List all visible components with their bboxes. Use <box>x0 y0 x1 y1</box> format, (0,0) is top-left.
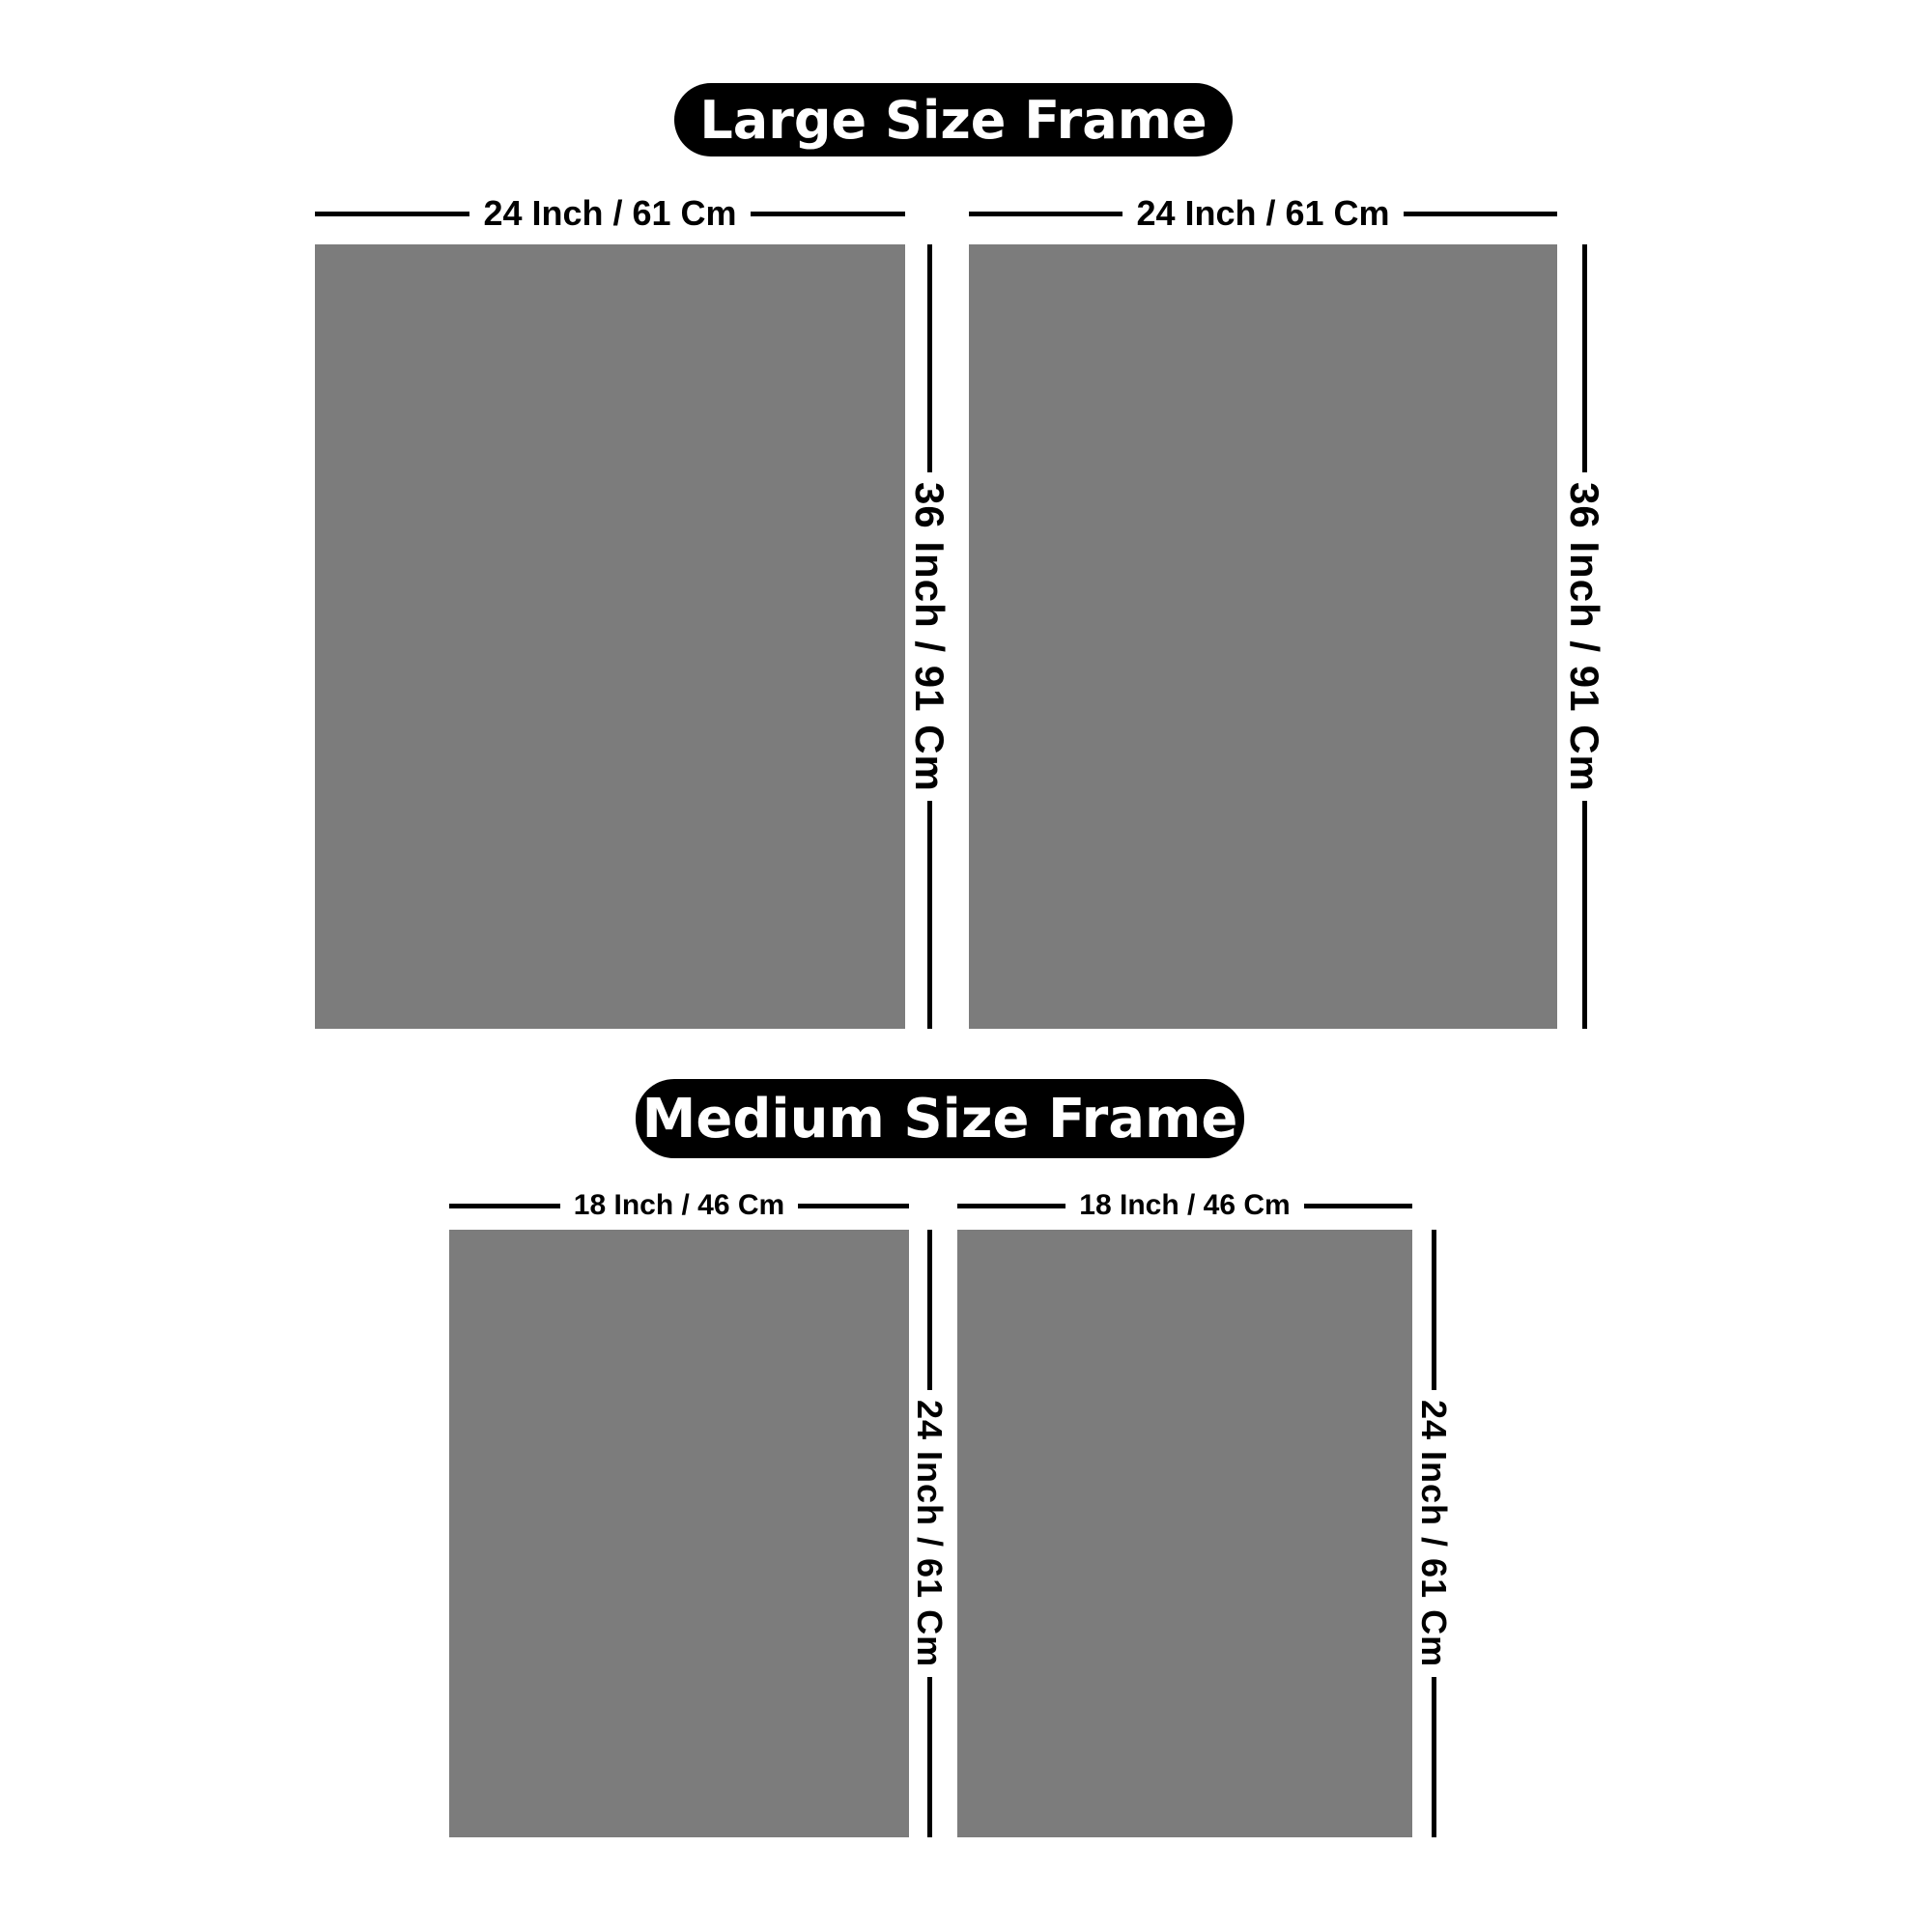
section-title-pill-medium: Medium Size Frame <box>636 1079 1244 1158</box>
height-label-large-1: 36 Inch / 91 Cm <box>906 482 952 792</box>
height-label-medium-1: 24 Inch / 61 Cm <box>909 1400 950 1667</box>
height-dimension-large-2: 36 Inch / 91 Cm <box>1563 244 1605 1029</box>
width-dimension-medium-1: 18 Inch / 46 Cm <box>449 1184 909 1227</box>
width-label-large-2: 24 Inch / 61 Cm <box>1136 193 1389 234</box>
width-label-medium-2: 18 Inch / 46 Cm <box>1079 1189 1290 1222</box>
dimension-line-right <box>751 212 905 216</box>
width-label-medium-1: 18 Inch / 46 Cm <box>574 1189 784 1222</box>
frame-rect-medium-1 <box>449 1230 909 1837</box>
dimension-line-left <box>969 212 1122 216</box>
width-label-large-1: 24 Inch / 61 Cm <box>483 193 736 234</box>
height-dimension-large-1: 36 Inch / 91 Cm <box>908 244 951 1029</box>
dimension-line-right <box>1404 212 1557 216</box>
dimension-line-left <box>449 1204 560 1208</box>
dimension-line-top <box>1432 1230 1436 1390</box>
dimension-line-right <box>798 1204 909 1208</box>
width-dimension-large-2: 24 Inch / 61 Cm <box>969 191 1557 236</box>
dimension-line-left <box>315 212 469 216</box>
dimension-line-top <box>1582 244 1587 472</box>
height-label-large-2: 36 Inch / 91 Cm <box>1561 482 1607 792</box>
dimension-line-top <box>927 1230 932 1390</box>
height-dimension-medium-1: 24 Inch / 61 Cm <box>908 1230 951 1837</box>
dimension-line-bottom <box>927 1677 932 1837</box>
frame-rect-large-1 <box>315 244 905 1029</box>
dimension-line-bottom <box>1582 801 1587 1029</box>
dimension-line-bottom <box>1432 1677 1436 1837</box>
section-title-medium: Medium Size Frame <box>642 1088 1238 1151</box>
height-label-medium-2: 24 Inch / 61 Cm <box>1413 1400 1454 1667</box>
width-dimension-medium-2: 18 Inch / 46 Cm <box>957 1184 1412 1227</box>
dimension-line-right <box>1304 1204 1412 1208</box>
size-chart-canvas: Large Size Frame 24 Inch / 61 Cm 24 Inch… <box>0 0 1932 1932</box>
section-title-pill-large: Large Size Frame <box>674 83 1233 156</box>
width-dimension-large-1: 24 Inch / 61 Cm <box>315 191 905 236</box>
dimension-line-bottom <box>927 801 932 1029</box>
frame-rect-large-2 <box>969 244 1557 1029</box>
height-dimension-medium-2: 24 Inch / 61 Cm <box>1412 1230 1455 1837</box>
section-title-large: Large Size Frame <box>699 90 1207 151</box>
dimension-line-top <box>927 244 932 472</box>
dimension-line-left <box>957 1204 1065 1208</box>
frame-rect-medium-2 <box>957 1230 1412 1837</box>
